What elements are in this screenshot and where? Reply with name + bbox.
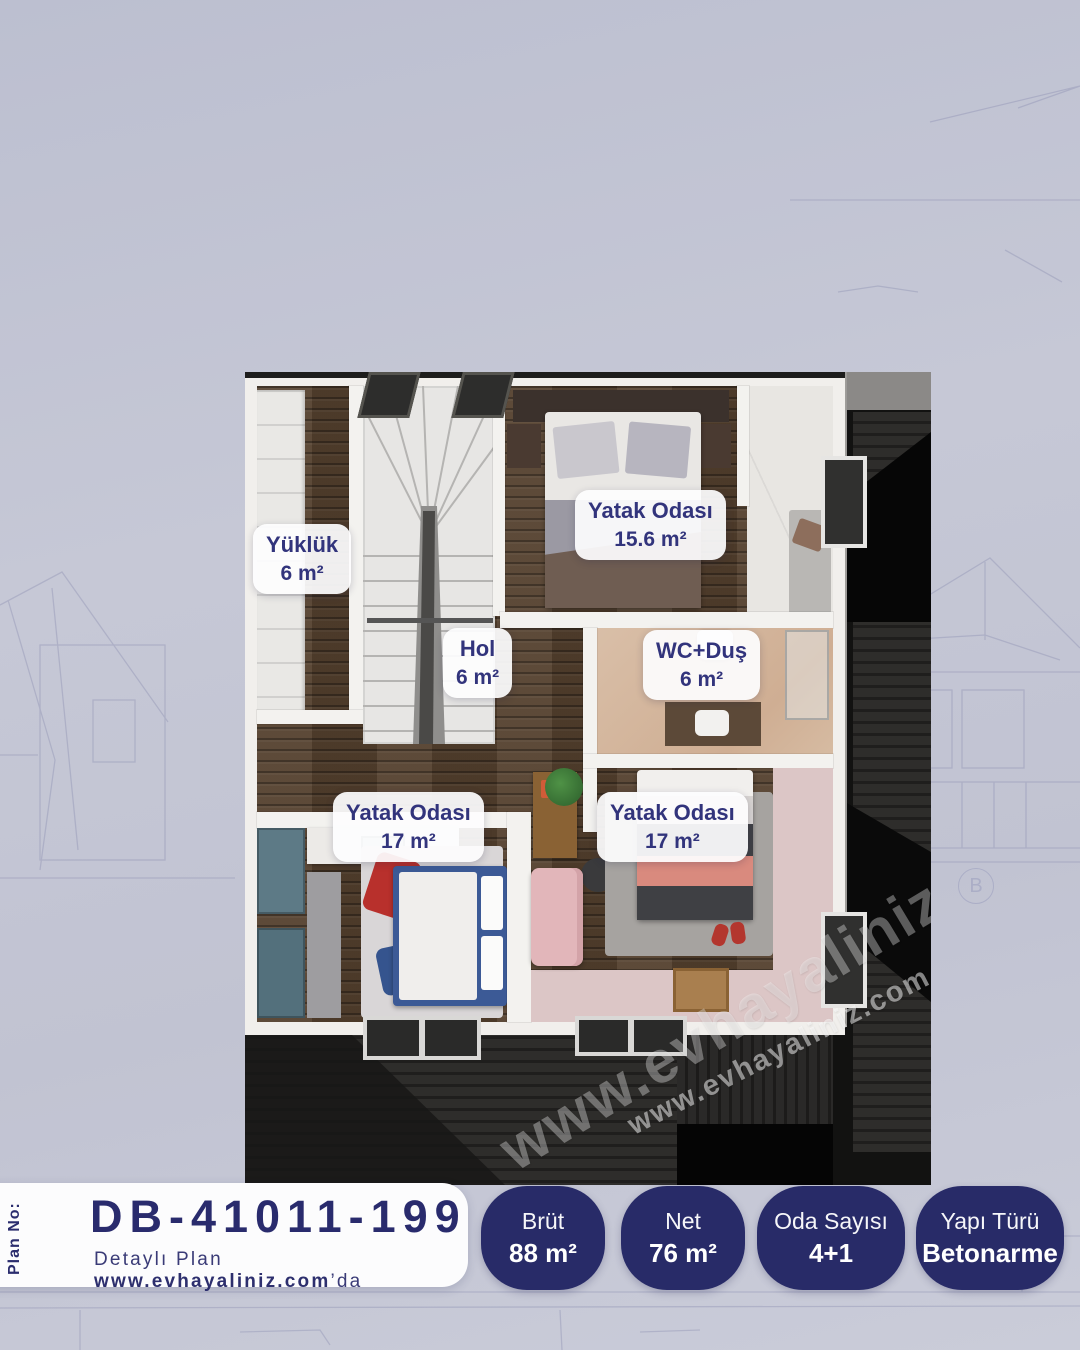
badge-value: 88 m² [509,1238,577,1269]
room-name: Yatak Odası [588,497,713,526]
bed-left-pillow [481,876,503,930]
plan-detail-line: Detaylı Plan www.evhayaliniz.com’da [94,1249,468,1293]
floorplan-render: www.evhayaliniz.com www.evhayaliniz.com.… [245,372,931,1185]
roof-right-top-gray [833,372,931,410]
badge-net: Net 76 m² [621,1186,745,1290]
room-name: Yatak Odası [346,799,471,828]
sketch-section-marker-letter: B [969,875,982,898]
pillow [625,421,691,478]
room-name: Yatak Odası [610,799,735,828]
room-name: Yüklük [266,531,338,560]
nightstand-right [697,424,731,468]
room-label-bedroom-top: Yatak Odası 15.6 m² [575,490,726,560]
house-top-edge [245,372,845,378]
badge-value: 4+1 [809,1238,853,1269]
cabinet-teal-bottom [257,928,305,1018]
wall-bedroom-bottom [500,612,833,628]
badge-value: Betonarme [922,1238,1058,1269]
window-right-top [821,456,867,548]
room-label-wc-dus: WC+Duş 6 m² [643,630,760,700]
room-area: 17 m² [346,828,471,855]
wall-bedrooms-divider [507,812,531,1022]
sketch-section-marker: B [958,868,994,904]
shower [785,630,829,720]
cabinet-teal-top [257,828,305,914]
plan-detail-site: www.evhayaliniz.com [94,1271,330,1292]
bed-left-pillow [481,936,503,990]
wall-wc-bottom [583,754,833,768]
wall-stairs-bedroom [493,386,505,616]
bed-left-duvet [399,872,477,1000]
wall-yukluk-stairs [349,386,363,716]
bed-left [393,866,507,1006]
plan-detail-suffix: ’da [330,1271,362,1292]
wc-vanity [665,702,761,746]
room-label-hol: Hol 6 m² [443,628,512,698]
pillow [552,421,619,479]
window-bottom-left [363,1016,481,1060]
room-name: WC+Duş [656,637,747,666]
badge-label: Brüt [522,1208,564,1235]
window-mullion [419,1016,425,1060]
wc-sink [695,710,729,736]
gray-runner-rug [307,872,341,1018]
badge-label: Net [665,1208,701,1235]
room-label-yukluk: Yüklük 6 m² [253,524,351,594]
room-area: 6 m² [456,664,499,691]
badge-oda-sayisi: Oda Sayısı 4+1 [757,1186,905,1290]
plant [545,768,583,806]
plan-code: DB-41011-199 [90,1191,467,1243]
wall-yukluk-bottom [257,710,363,724]
room-area: 6 m² [266,560,338,587]
badge-brut: Brüt 88 m² [481,1186,605,1290]
badge-yapi-turu: Yapı Türü Betonarme [916,1186,1064,1290]
plan-no-label: Plan No: [6,1195,24,1275]
room-area: 6 m² [656,666,747,693]
badge-label: Yapı Türü [941,1208,1040,1235]
chaise-pink [531,868,583,966]
room-name: Hol [456,635,499,664]
room-area: 17 m² [610,828,735,855]
room-label-bedroom-right: Yatak Odası 17 m² [597,792,748,862]
wall-hol-wc [583,628,597,832]
plan-info-card: Plan No: DB-41011-199 Detaylı Plan www.e… [0,1183,468,1287]
room-label-bedroom-left: Yatak Odası 17 m² [333,792,484,862]
badge-label: Oda Sayısı [774,1208,888,1235]
badge-value: 76 m² [649,1238,717,1269]
stair-railing [367,618,493,623]
room-area: 15.6 m² [588,526,713,553]
real-estate-floorplan-poster: { "plan_card": { "plan_no_label": "Plan … [0,0,1080,1350]
wall-bedroom-dressing [737,386,749,506]
nightstand-left [507,424,541,468]
plan-detail-prefix: Detaylı Plan [94,1249,223,1270]
